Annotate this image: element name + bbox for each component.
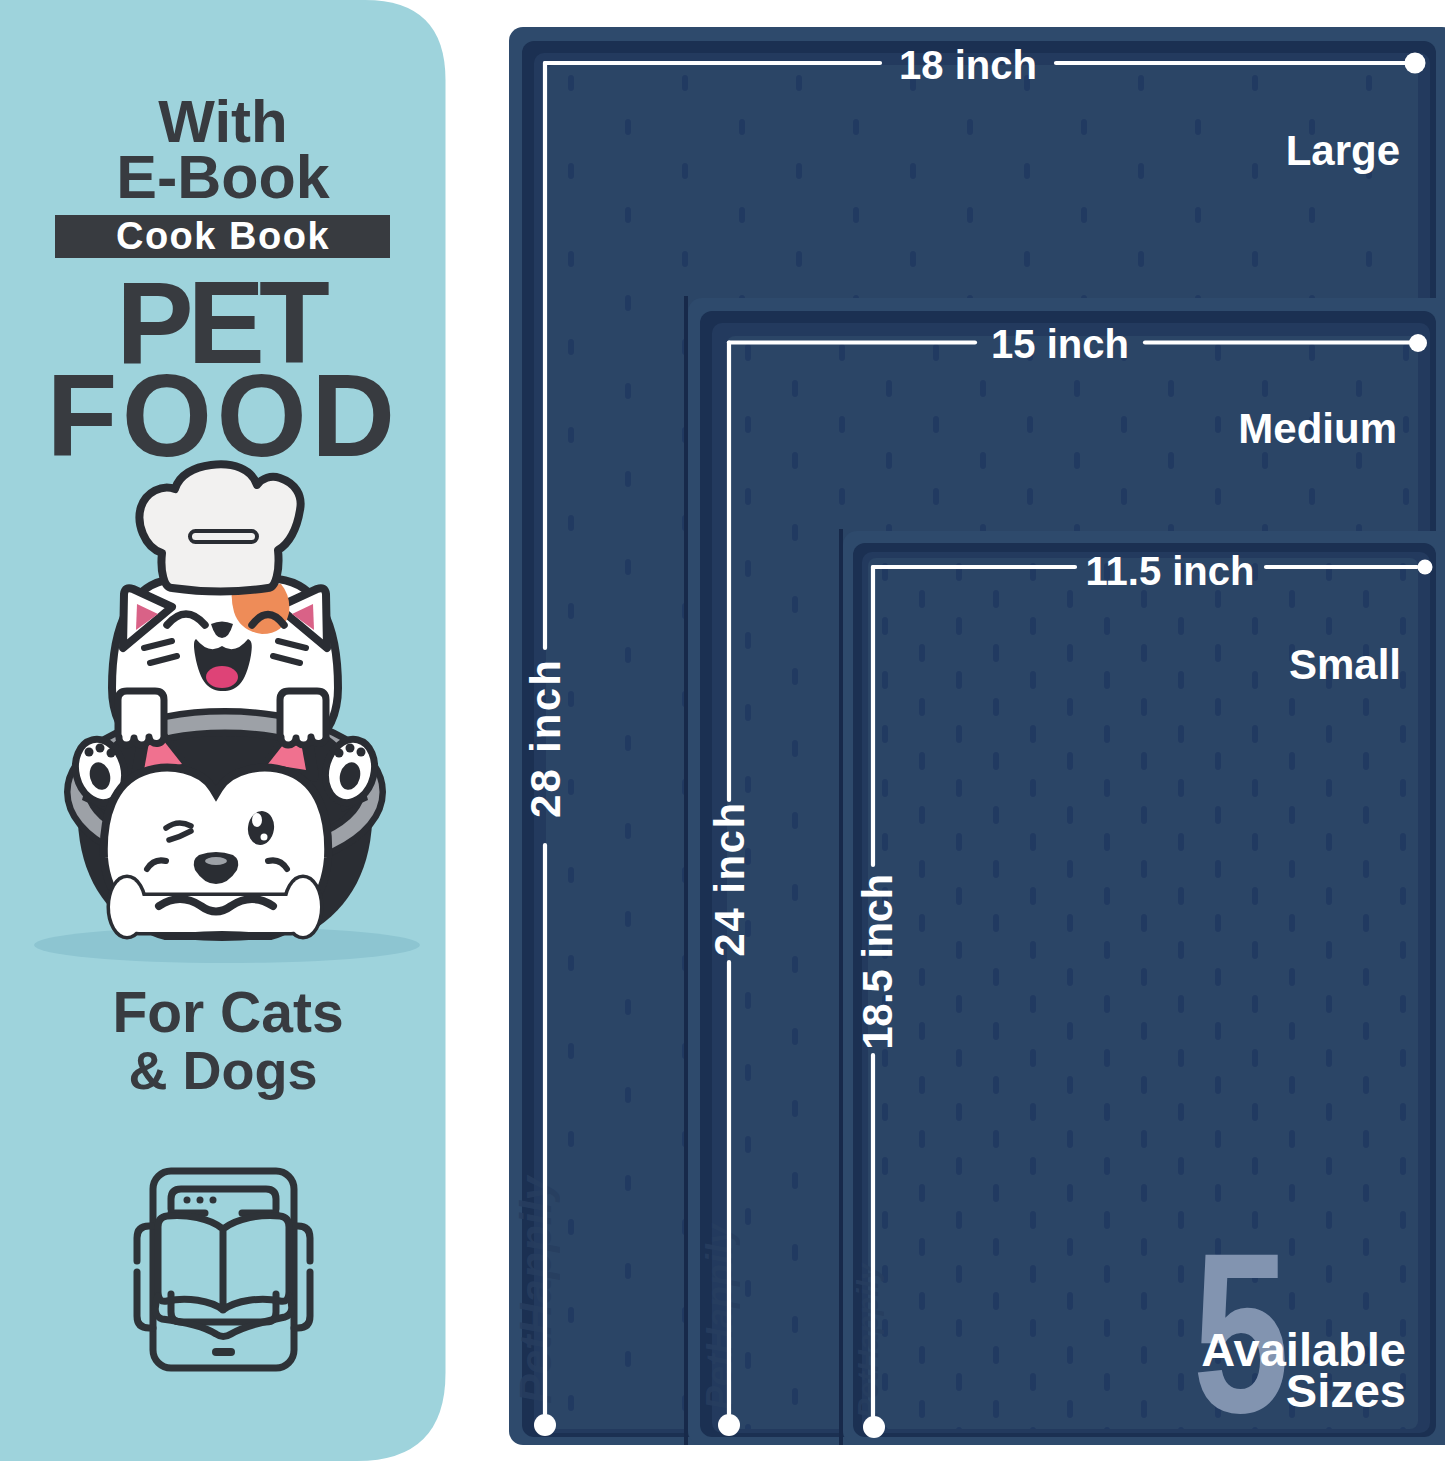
- svg-text:PetHappily: PetHappily: [511, 1174, 560, 1404]
- svg-text:24 inch: 24 inch: [706, 801, 753, 956]
- svg-text:& Dogs: & Dogs: [129, 1040, 318, 1100]
- svg-text:11.5 inch: 11.5 inch: [1086, 549, 1255, 593]
- svg-text:18 inch: 18 inch: [899, 43, 1037, 87]
- svg-text:18.5 inch: 18.5 inch: [854, 874, 901, 1049]
- svg-text:PetHappily: PetHappily: [851, 1262, 884, 1418]
- svg-text:Small: Small: [1289, 641, 1401, 688]
- svg-text:15 inch: 15 inch: [991, 322, 1129, 366]
- svg-text:For Cats: For Cats: [112, 980, 343, 1044]
- svg-text:Large: Large: [1286, 127, 1400, 174]
- svg-text:Sizes: Sizes: [1286, 1364, 1406, 1417]
- svg-text:PetHappily: PetHappily: [699, 1222, 740, 1410]
- svg-text:28 inch: 28 inch: [522, 658, 569, 818]
- svg-text:Cook Book: Cook Book: [116, 215, 330, 257]
- svg-text:E-Book: E-Book: [116, 143, 330, 211]
- svg-text:Medium: Medium: [1238, 405, 1397, 452]
